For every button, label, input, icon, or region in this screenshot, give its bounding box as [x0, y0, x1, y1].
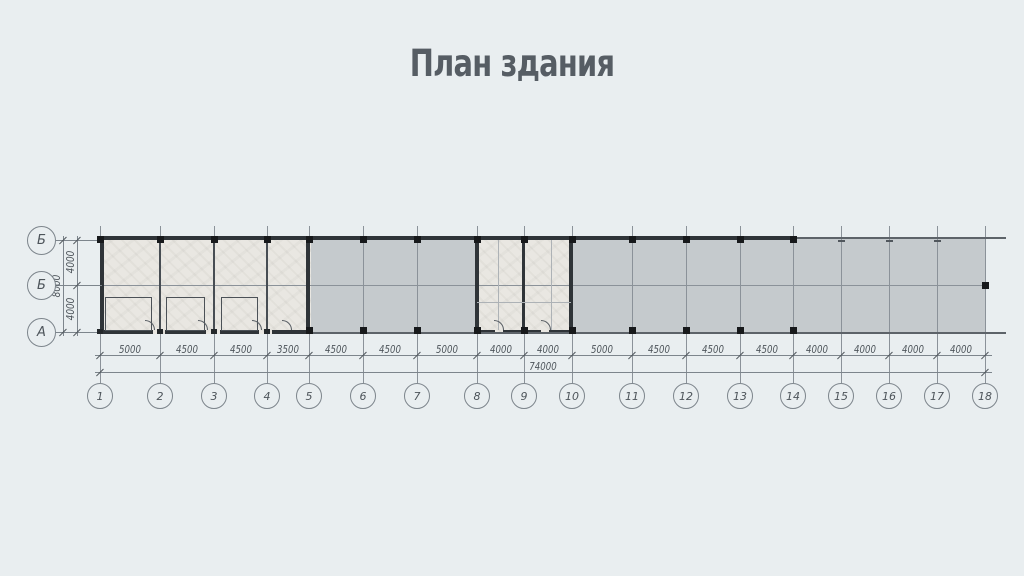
column-marker-top-13 [737, 236, 744, 243]
column-bubble-10: 10 [559, 383, 585, 409]
column-bubble-9: 9 [511, 383, 537, 409]
row-bubble-3: А [27, 318, 56, 347]
dim-text-horizontal-segment-7: 5000 [436, 344, 458, 356]
column-marker-bottom-14 [790, 327, 797, 334]
floor-plan: 4000 4000 8000 74000 5000450045003500450… [0, 0, 1024, 576]
room-glazing-line-1 [498, 240, 499, 330]
dim-text-horizontal-total: 74000 [529, 361, 556, 373]
column-bubble-8: 8 [464, 383, 490, 409]
column-marker-top-8 [474, 236, 481, 243]
room-wall-left [475, 236, 479, 334]
partition-axis2 [159, 240, 161, 330]
column-bubble-13: 13 [727, 383, 753, 409]
dim-text-horizontal-segment-15: 4000 [854, 344, 876, 356]
dim-text-horizontal-segment-6: 4500 [379, 344, 401, 356]
column-dash-top-17 [934, 240, 941, 242]
edge-top-thin [793, 237, 1006, 239]
partition-axis3 [213, 240, 215, 330]
column-marker-top-12 [683, 236, 690, 243]
dim-text-horizontal-segment-14: 4000 [806, 344, 828, 356]
column-bubble-7: 7 [404, 383, 430, 409]
column-marker-top-7 [414, 236, 421, 243]
column-bubble-6: 6 [350, 383, 376, 409]
axis-line-7 [417, 226, 418, 383]
column-marker-bottom-5 [306, 327, 313, 334]
row-bubble-1: Б [27, 226, 56, 255]
dim-text-horizontal-segment-1: 5000 [119, 344, 141, 356]
room-wall-right [569, 236, 573, 334]
column-bubble-5: 5 [296, 383, 322, 409]
dim-text-horizontal-segment-16: 4000 [902, 344, 924, 356]
column-bubble-16: 16 [876, 383, 902, 409]
column-bubble-17: 17 [924, 383, 950, 409]
axis-line-11 [632, 226, 633, 383]
axis-line-16 [889, 226, 890, 383]
dim-text-horizontal-segment-4: 3500 [277, 344, 299, 356]
axis-line-15 [841, 226, 842, 383]
column-bubble-3: 3 [201, 383, 227, 409]
column-marker-bottom-6 [360, 327, 367, 334]
dim-text-horizontal-segment-13: 4500 [756, 344, 778, 356]
drawing-canvas: План здания [0, 0, 1024, 576]
column-marker-bottom-12 [683, 327, 690, 334]
column-marker-top-1 [97, 236, 104, 243]
column-marker-top-14 [790, 236, 797, 243]
dim-text-horizontal-segment-10: 5000 [591, 344, 613, 356]
column-bubble-12: 12 [673, 383, 699, 409]
axis-line-17 [937, 226, 938, 383]
dim-text-horizontal-segment-17: 4000 [950, 344, 972, 356]
column-bubble-15: 15 [828, 383, 854, 409]
dim-text-horizontal-segment-2: 4500 [176, 344, 198, 356]
axis-line-14 [793, 226, 794, 383]
wall-axis5 [306, 236, 310, 334]
dim-text-horizontal-segment-12: 4500 [702, 344, 724, 356]
dim-text-horizontal-segment-9: 4000 [537, 344, 559, 356]
column-dash-top-16 [886, 240, 893, 242]
column-marker-bottom-11 [629, 327, 636, 334]
axis-line-13 [740, 226, 741, 383]
dim-text-horizontal-segment-11: 4500 [648, 344, 670, 356]
row-bubble-2: Б [27, 271, 56, 300]
column-bubble-1: 1 [87, 383, 113, 409]
column-marker-top-6 [360, 236, 367, 243]
column-marker-top-11 [629, 236, 636, 243]
dim-text-vertical-segment-1: 4000 [65, 251, 77, 274]
column-marker-bottom-8 [474, 327, 481, 334]
column-marker-bottom-13 [737, 327, 744, 334]
axis-line-6 [363, 226, 364, 383]
column-marker-bottom-10 [569, 327, 576, 334]
axis-line-12 [686, 226, 687, 383]
dim-line-vertical-total [63, 236, 64, 336]
dim-text-horizontal-segment-8: 4000 [490, 344, 512, 356]
column-bubble-4: 4 [254, 383, 280, 409]
column-marker-bottom-7 [414, 327, 421, 334]
column-marker-top-3 [211, 236, 218, 243]
column-marker-top-10 [569, 236, 576, 243]
column-marker-bottom-small-2 [157, 329, 163, 334]
column-marker-bottom-small-1 [97, 329, 103, 334]
room-inner-hline [477, 302, 571, 303]
column-marker-bottom-small-3 [211, 329, 217, 334]
column-marker-top-2 [157, 236, 164, 243]
column-bubble-11: 11 [619, 383, 645, 409]
dim-text-vertical-segment-2: 4000 [65, 298, 77, 321]
column-marker-top-4 [264, 236, 271, 243]
dim-text-horizontal-segment-5: 4500 [325, 344, 347, 356]
column-marker-bottom-small-4 [264, 329, 270, 334]
column-marker-middle-18 [982, 282, 989, 289]
column-bubble-14: 14 [780, 383, 806, 409]
middle-grid-line [100, 285, 985, 286]
column-dash-top-15 [838, 240, 845, 242]
room-partition [522, 240, 525, 330]
column-bubble-18: 18 [972, 383, 998, 409]
partition-axis4 [266, 240, 268, 330]
axis-line-18 [985, 226, 986, 383]
column-marker-top-5 [306, 236, 313, 243]
dim-text-horizontal-segment-3: 4500 [230, 344, 252, 356]
column-marker-bottom-9 [521, 327, 528, 334]
column-bubble-2: 2 [147, 383, 173, 409]
column-marker-top-9 [521, 236, 528, 243]
wall-bottom-seg-4 [272, 330, 310, 334]
wall-top [100, 236, 796, 240]
room-glazing-line-2 [551, 240, 552, 330]
